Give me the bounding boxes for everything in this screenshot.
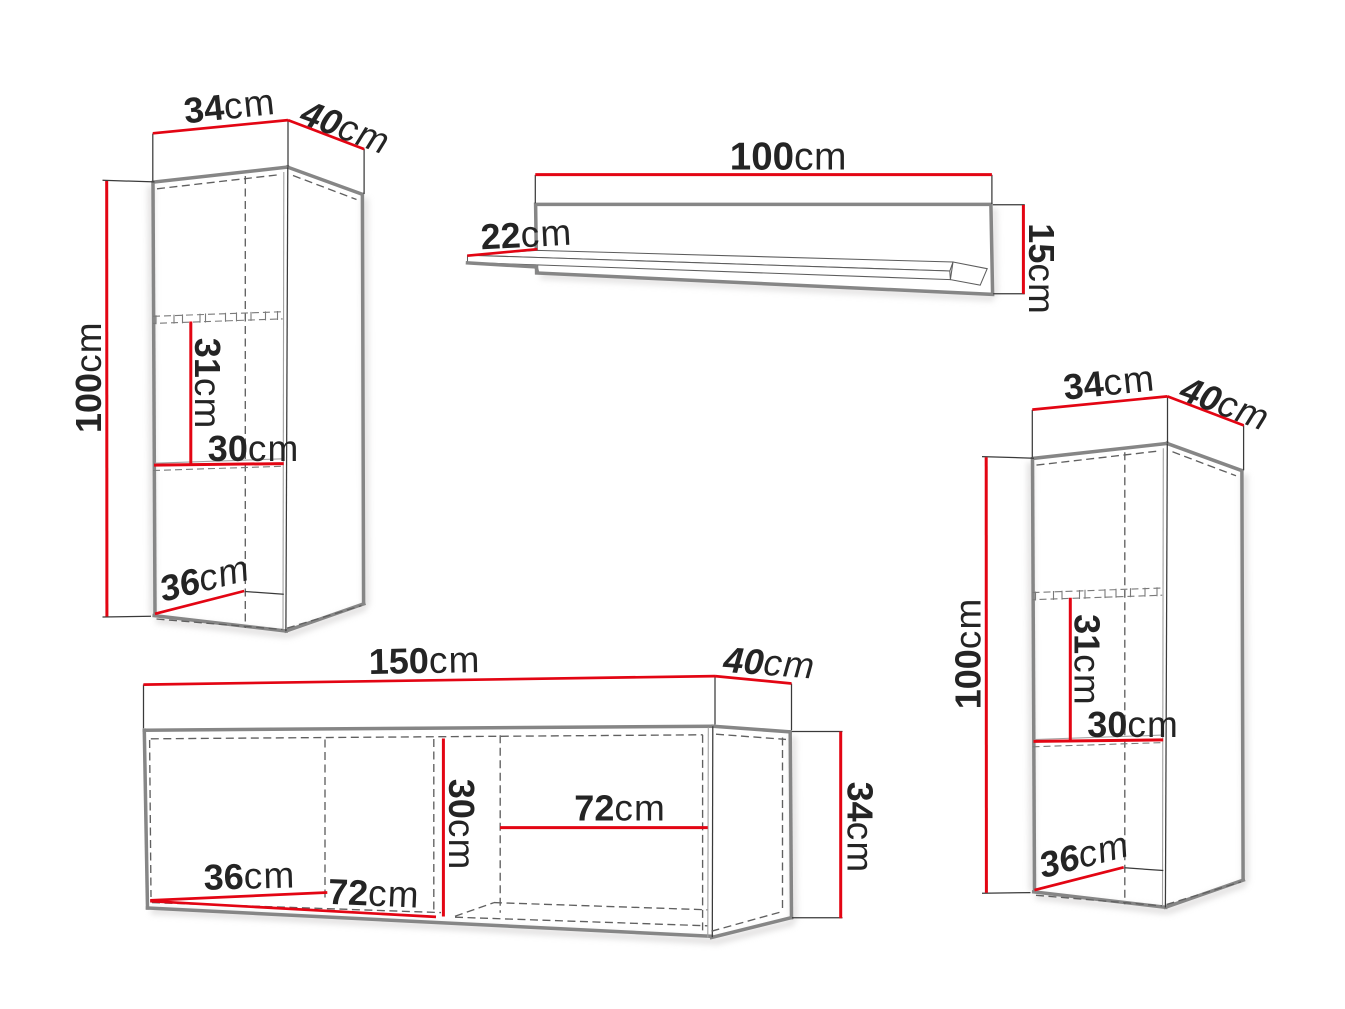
svg-text:40cm: 40cm [721,639,817,687]
svg-text:72cm: 72cm [327,871,420,916]
svg-text:15cm: 15cm [1021,223,1062,315]
svg-text:30cm: 30cm [208,428,300,469]
svg-text:30cm: 30cm [441,779,482,871]
svg-text:31cm: 31cm [187,338,228,430]
svg-text:100cm: 100cm [730,136,847,179]
svg-text:150cm: 150cm [368,639,481,682]
svg-text:22cm: 22cm [480,212,574,258]
svg-text:36cm: 36cm [203,854,296,897]
svg-text:72cm: 72cm [574,787,666,828]
svg-text:34cm: 34cm [839,782,880,874]
svg-text:100cm: 100cm [68,321,109,433]
